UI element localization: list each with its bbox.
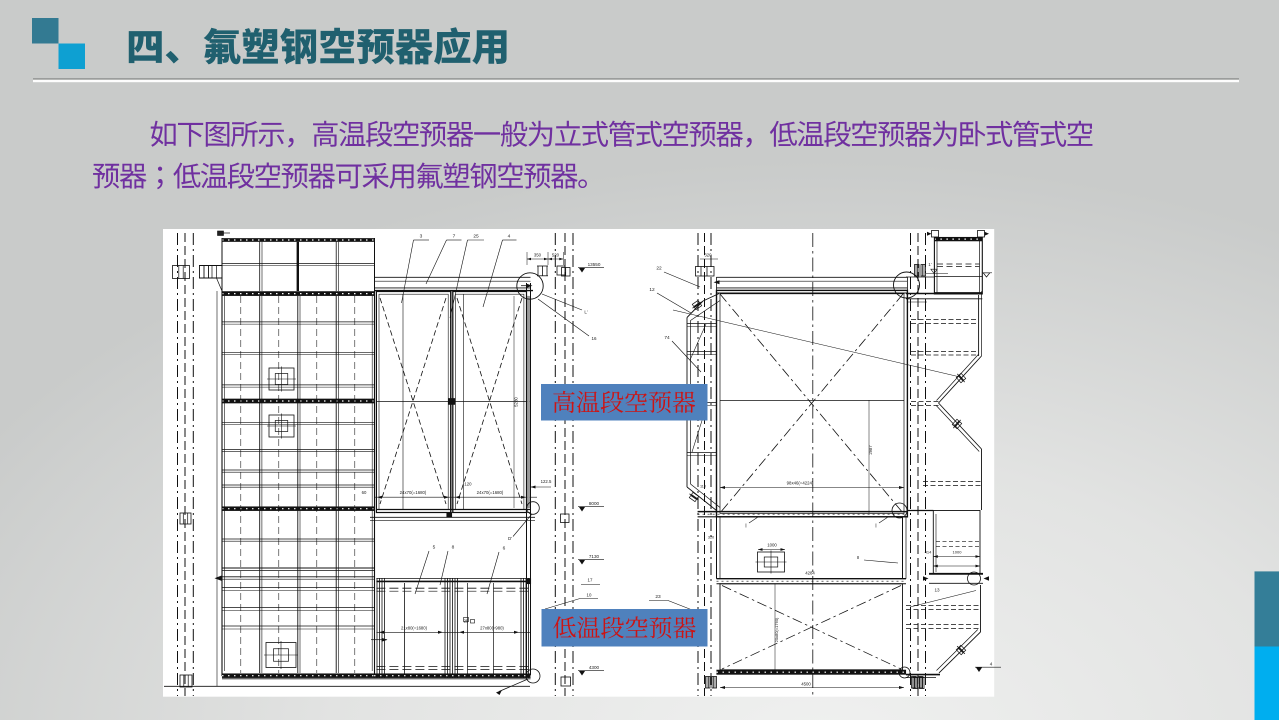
svg-text:1': 1' <box>928 262 931 267</box>
svg-text:27x80(=980): 27x80(=980) <box>480 626 504 631</box>
svg-text:4: 4 <box>990 661 993 666</box>
svg-text:D': D' <box>508 536 512 541</box>
svg-text:120: 120 <box>464 482 472 487</box>
svg-text:350: 350 <box>534 253 542 258</box>
svg-text:1000: 1000 <box>767 543 777 548</box>
svg-text:7130: 7130 <box>589 554 600 559</box>
svg-text:II: II <box>857 555 860 561</box>
svg-text:414: 414 <box>925 550 932 555</box>
svg-text:4: 4 <box>508 234 511 240</box>
svg-text:25: 25 <box>473 234 479 240</box>
svg-text:8: 8 <box>452 545 455 551</box>
svg-text:24x70(=1680): 24x70(=1680) <box>477 490 504 495</box>
svg-text:23: 23 <box>655 594 661 600</box>
svg-text:320: 320 <box>704 253 712 258</box>
svg-text:74: 74 <box>664 335 670 341</box>
svg-text:520: 520 <box>552 253 560 258</box>
svg-text:110: 110 <box>700 485 706 489</box>
svg-text:1000: 1000 <box>953 550 963 555</box>
svg-text:3: 3 <box>420 234 423 240</box>
svg-text:I: I <box>745 524 746 530</box>
svg-text:4300: 4300 <box>589 665 600 670</box>
svg-text:12: 12 <box>649 287 655 293</box>
svg-text:5: 5 <box>433 545 436 551</box>
svg-text:24x70(=1680): 24x70(=1680) <box>400 490 427 495</box>
svg-text:122.5: 122.5 <box>541 479 552 484</box>
svg-text:8000: 8000 <box>589 501 600 506</box>
svg-text:I: I <box>875 524 876 530</box>
svg-text:60: 60 <box>362 490 367 495</box>
svg-text:22: 22 <box>656 266 662 272</box>
svg-text:17: 17 <box>588 578 593 583</box>
svg-text:13550: 13550 <box>588 262 601 267</box>
svg-text:25: 25 <box>464 619 469 624</box>
svg-text:13: 13 <box>934 588 940 593</box>
svg-text:4500: 4500 <box>801 682 811 687</box>
svg-text:7: 7 <box>453 234 456 240</box>
svg-text:L': L' <box>584 310 588 315</box>
svg-text:10: 10 <box>587 593 592 598</box>
svg-text:4284: 4284 <box>805 571 815 576</box>
svg-text:21x80(=1680): 21x80(=1680) <box>401 626 428 631</box>
svg-text:16: 16 <box>591 336 597 341</box>
svg-text:6: 6 <box>503 546 506 552</box>
svg-text:98x46(=4224): 98x46(=4224) <box>787 481 814 486</box>
svg-text:320: 320 <box>708 536 714 540</box>
